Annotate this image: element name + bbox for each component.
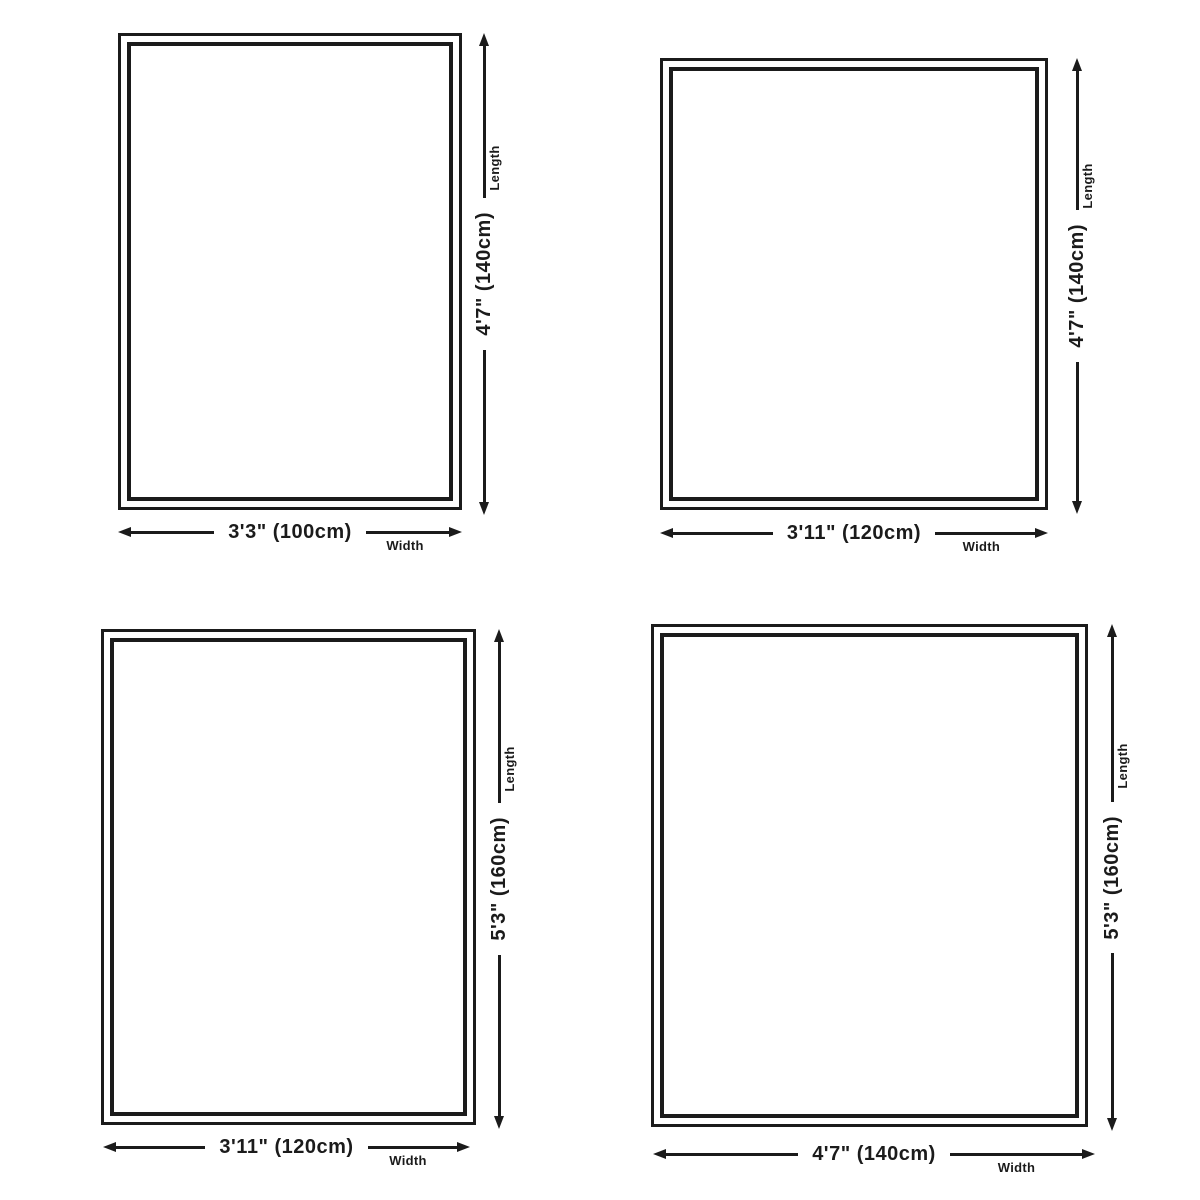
width-axis-label: Width [386, 538, 423, 553]
width-arrow-left-segment [660, 523, 773, 543]
size-diagram-bottom-left: 5'3" (160cm) Length 3'11" (120cm) Width [101, 629, 551, 1189]
dimension-line [498, 955, 501, 1116]
width-axis-label: Width [389, 1153, 426, 1168]
length-value: 5'3" (160cm) [488, 817, 511, 941]
length-arrow-lower-segment [467, 350, 501, 515]
length-arrow-lower-segment [1095, 953, 1129, 1131]
length-axis-label: Length [487, 145, 502, 190]
length-value: 5'3" (160cm) [1101, 816, 1124, 940]
arrow-up-icon [479, 33, 489, 46]
size-diagram-top-right: 4'7" (140cm) Length 3'11" (120cm) Width [660, 58, 1120, 578]
length-arrow-lower-segment [482, 955, 516, 1129]
width-arrow-left-segment [653, 1144, 798, 1164]
arrow-down-icon [1107, 1118, 1117, 1131]
arrow-down-icon [1072, 501, 1082, 514]
width-dimension: 3'3" (100cm) Width [118, 522, 462, 542]
width-axis-label: Width [998, 1160, 1035, 1175]
rug-inner-outline [127, 42, 453, 501]
arrow-right-icon [1035, 528, 1048, 538]
length-axis-label: Length [502, 746, 517, 791]
arrow-left-icon [653, 1149, 666, 1159]
dimension-line [483, 46, 486, 198]
arrow-up-icon [1107, 624, 1117, 637]
rug-outline [101, 629, 476, 1125]
length-dimension: 5'3" (160cm) Length [482, 629, 516, 1129]
dimension-line [498, 642, 501, 803]
width-arrow-left-segment [118, 522, 214, 542]
dimension-line [950, 1153, 1082, 1156]
dimension-line [1076, 71, 1079, 210]
dimension-line [116, 1146, 205, 1149]
dimension-line [366, 531, 449, 534]
width-dimension: 3'11" (120cm) Width [660, 523, 1048, 543]
arrow-down-icon [479, 502, 489, 515]
rug-outline [660, 58, 1048, 510]
rug-inner-outline [110, 638, 467, 1116]
rug-outline [651, 624, 1088, 1127]
length-axis-label: Length [1115, 743, 1130, 788]
width-dimension: 4'7" (140cm) Width [653, 1144, 1095, 1164]
length-value: 4'7" (140cm) [473, 212, 496, 336]
width-value: 4'7" (140cm) [812, 1143, 936, 1166]
width-arrow-left-segment [103, 1137, 205, 1157]
dimension-line [935, 532, 1035, 535]
arrow-left-icon [103, 1142, 116, 1152]
dimension-line [1076, 362, 1079, 501]
arrow-left-icon [660, 528, 673, 538]
dimension-line [673, 532, 773, 535]
length-dimension: 5'3" (160cm) Length [1095, 624, 1129, 1131]
length-axis-label: Length [1080, 163, 1095, 208]
rug-size-chart: 4'7" (140cm) Length 3'3" (100cm) Width [0, 0, 1200, 1200]
rug-inner-outline [669, 67, 1039, 501]
length-dimension: 4'7" (140cm) Length [1060, 58, 1094, 514]
length-value: 4'7" (140cm) [1066, 224, 1089, 348]
arrow-down-icon [494, 1116, 504, 1129]
arrow-right-icon [449, 527, 462, 537]
length-arrow-lower-segment [1060, 362, 1094, 514]
width-value: 3'3" (100cm) [228, 521, 352, 544]
dimension-line [666, 1153, 798, 1156]
width-dimension: 3'11" (120cm) Width [103, 1137, 470, 1157]
dimension-line [131, 531, 214, 534]
arrow-left-icon [118, 527, 131, 537]
arrow-right-icon [1082, 1149, 1095, 1159]
width-value: 3'11" (120cm) [787, 522, 921, 545]
dimension-line [483, 350, 486, 502]
rug-outline [118, 33, 462, 510]
length-dimension: 4'7" (140cm) Length [467, 33, 501, 515]
width-axis-label: Width [963, 539, 1000, 554]
arrow-up-icon [1072, 58, 1082, 71]
width-value: 3'11" (120cm) [219, 1136, 353, 1159]
arrow-up-icon [494, 629, 504, 642]
size-diagram-top-left: 4'7" (140cm) Length 3'3" (100cm) Width [118, 33, 538, 573]
size-diagram-bottom-right: 5'3" (160cm) Length 4'7" (140cm) Width [651, 624, 1151, 1194]
rug-inner-outline [660, 633, 1079, 1118]
dimension-line [1111, 953, 1114, 1118]
dimension-line [1111, 637, 1114, 802]
dimension-line [368, 1146, 457, 1149]
arrow-right-icon [457, 1142, 470, 1152]
